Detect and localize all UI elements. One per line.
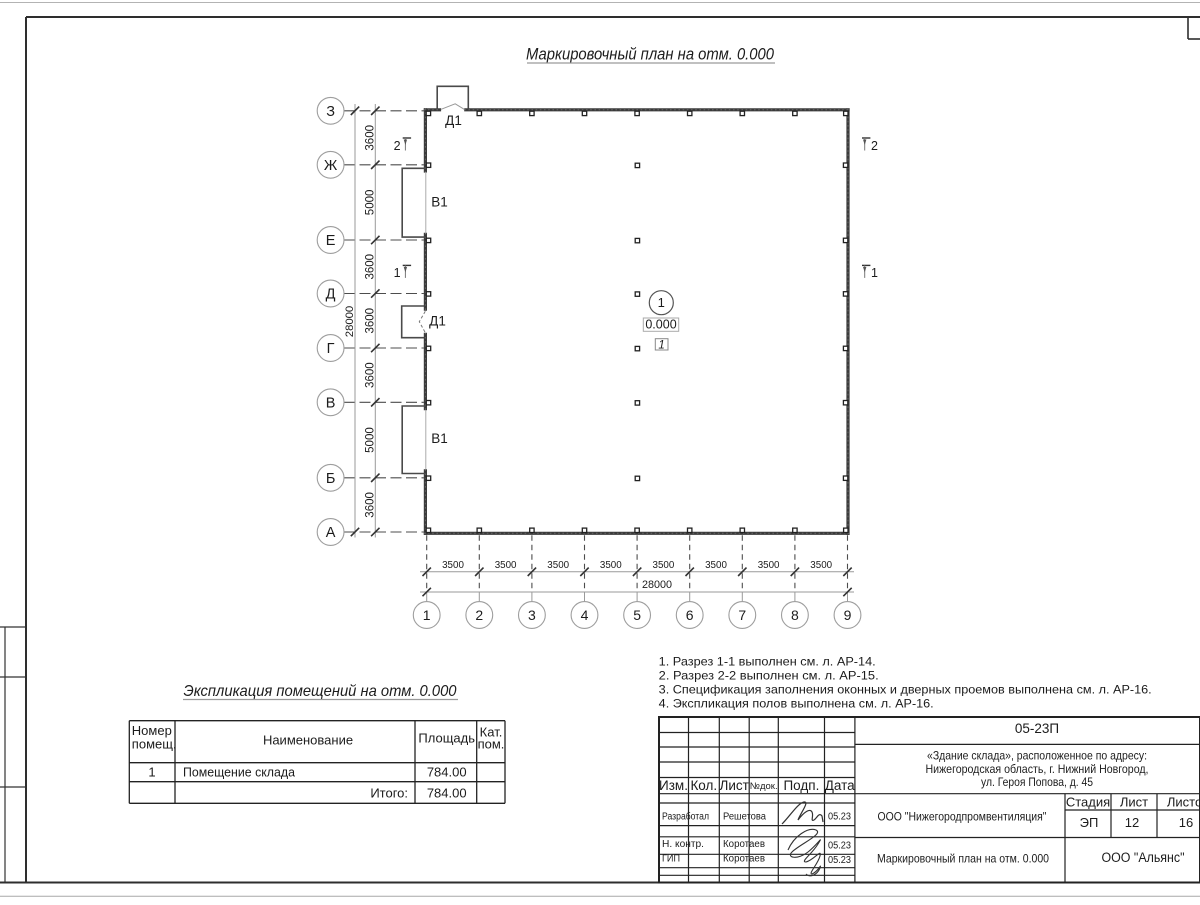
svg-text:Решетова: Решетова [723, 812, 767, 823]
svg-text:ГИП: ГИП [662, 854, 680, 865]
svg-text:Площадь: Площадь [418, 731, 475, 746]
svg-text:8: 8 [791, 607, 799, 623]
svg-text:Маркировочный план на отм. 0.0: Маркировочный план на отм. 0.000 [877, 852, 1049, 866]
svg-text:Н. контр.: Н. контр. [662, 839, 704, 850]
svg-text:Стадия: Стадия [1066, 795, 1110, 810]
svg-text:Итого:: Итого: [370, 785, 408, 800]
svg-text:3500: 3500 [758, 560, 780, 571]
svg-text:3500: 3500 [705, 560, 727, 571]
svg-text:5000: 5000 [364, 427, 376, 453]
svg-text:ул. Героя Попова, д. 45: ул. Героя Попова, д. 45 [981, 775, 1093, 789]
svg-text:Помещение склада: Помещение склада [183, 765, 296, 780]
svg-text:05-23П: 05-23П [1015, 721, 1059, 736]
svg-text:В1: В1 [431, 431, 448, 446]
svg-text:3600: 3600 [364, 254, 376, 280]
svg-text:1: 1 [394, 266, 401, 280]
svg-text:6: 6 [686, 607, 694, 623]
svg-text:784.00: 784.00 [427, 765, 467, 780]
svg-text:1: 1 [423, 607, 431, 623]
svg-text:3600: 3600 [364, 125, 376, 151]
svg-text:05.23: 05.23 [828, 841, 852, 852]
svg-text:4. Экспликация полов выполнена: 4. Экспликация полов выполнена см. л. АР… [659, 697, 934, 711]
svg-text:Лист: Лист [1120, 795, 1148, 810]
svg-text:Г: Г [327, 341, 335, 357]
svg-text:1: 1 [148, 765, 155, 780]
svg-text:Разработал: Разработал [662, 812, 709, 823]
svg-text:3500: 3500 [547, 560, 569, 571]
svg-text:3500: 3500 [600, 560, 622, 571]
svg-text:9: 9 [844, 607, 852, 623]
svg-text:В: В [326, 396, 336, 412]
svg-text:5: 5 [633, 607, 641, 623]
svg-text:Д1: Д1 [429, 314, 446, 329]
svg-text:Б: Б [326, 471, 336, 487]
svg-text:2: 2 [871, 139, 878, 153]
svg-text:Экспликация помещений на отм.: Экспликация помещений на отм. 0.000 [184, 683, 457, 700]
svg-text:3500: 3500 [442, 560, 464, 571]
svg-text:1: 1 [658, 339, 664, 351]
svg-text:28000: 28000 [642, 579, 672, 591]
svg-text:3500: 3500 [653, 560, 675, 571]
svg-text:ООО "Альянс": ООО "Альянс" [1102, 850, 1185, 865]
svg-text:Подп.: Подп. [783, 778, 819, 793]
svg-text:Д: Д [326, 287, 336, 303]
svg-text:28000: 28000 [344, 306, 356, 337]
svg-text:Ж: Ж [324, 158, 338, 174]
svg-text:3: 3 [528, 607, 536, 623]
svg-text:12: 12 [1125, 815, 1139, 830]
svg-text:З: З [326, 104, 335, 120]
svg-text:05.23: 05.23 [828, 855, 852, 866]
svg-text:16: 16 [1179, 815, 1193, 830]
svg-text:ЭП: ЭП [1080, 815, 1099, 830]
svg-text:Листов: Листов [1167, 795, 1200, 810]
svg-text:0.000: 0.000 [645, 318, 676, 332]
svg-text:3. Спецификация заполнения око: 3. Спецификация заполнения оконных и две… [659, 683, 1152, 697]
svg-text:3600: 3600 [364, 362, 376, 388]
svg-text:пом.: пом. [478, 737, 505, 752]
svg-text:3500: 3500 [810, 560, 832, 571]
svg-text:ООО "Нижегородпромвентиляция": ООО "Нижегородпромвентиляция" [878, 811, 1047, 824]
svg-text:«Здание склада», расположенное: «Здание склада», расположенное по адресу… [927, 749, 1147, 763]
svg-text:2: 2 [394, 139, 401, 153]
svg-text:2: 2 [475, 607, 483, 623]
svg-text:помещ.: помещ. [132, 737, 177, 752]
svg-text:5000: 5000 [364, 190, 376, 216]
svg-text:05.23: 05.23 [828, 812, 852, 823]
svg-text:Лист: Лист [720, 778, 749, 793]
svg-text:Наименование: Наименование [263, 733, 353, 748]
svg-text:7: 7 [738, 607, 746, 623]
svg-text:1. Разрез 1-1 выполнен см. л.: 1. Разрез 1-1 выполнен см. л. АР-14. [659, 655, 876, 669]
svg-text:Нижегородская область, г. Нижн: Нижегородская область, г. Нижний Новгоро… [926, 762, 1149, 776]
svg-text:3500: 3500 [495, 560, 517, 571]
svg-text:Е: Е [326, 233, 336, 249]
svg-text:3600: 3600 [364, 492, 376, 518]
svg-text:Дата: Дата [825, 778, 855, 793]
svg-text:1: 1 [658, 295, 665, 310]
svg-text:Коротаев: Коротаев [723, 839, 765, 850]
svg-text:4: 4 [581, 607, 589, 623]
svg-text:3600: 3600 [364, 308, 376, 334]
svg-text:Кол.: Кол. [690, 778, 717, 793]
svg-text:Изм.: Изм. [659, 778, 688, 793]
svg-text:784.00: 784.00 [427, 785, 467, 800]
svg-text:1: 1 [871, 266, 878, 280]
svg-text:2. Разрез 2-2 выполнен см. л.: 2. Разрез 2-2 выполнен см. л. АР-15. [659, 669, 879, 683]
svg-text:№док.: №док. [750, 781, 778, 792]
svg-text:Д1: Д1 [445, 113, 462, 128]
svg-text:Коротаев: Коротаев [723, 854, 765, 865]
svg-text:Маркировочный план на отм. 0.0: Маркировочный план на отм. 0.000 [526, 45, 774, 64]
svg-text:В1: В1 [431, 195, 448, 210]
svg-text:А: А [326, 525, 336, 541]
